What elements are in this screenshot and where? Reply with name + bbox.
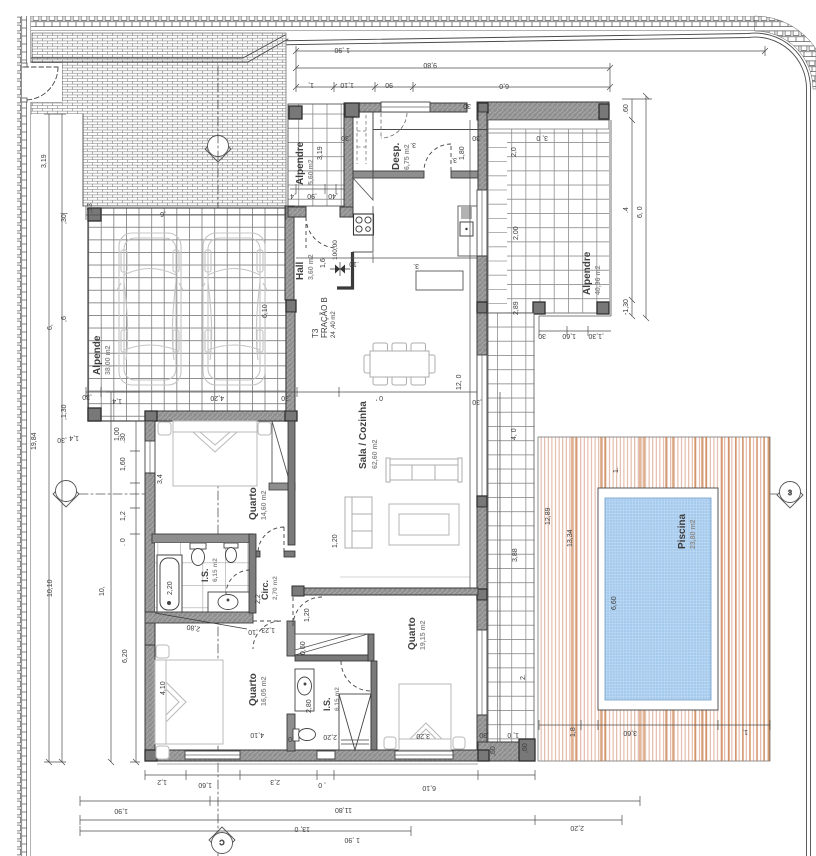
- svg-text:Desp.: Desp.: [391, 143, 402, 170]
- svg-text:2,0: 2,0: [511, 147, 518, 157]
- svg-text:0,60: 0,60: [300, 641, 307, 655]
- svg-text:,0|: ,0|: [286, 735, 294, 742]
- svg-text:Alpende: Alpende: [92, 335, 103, 375]
- svg-text:2,89: 2,89: [513, 301, 520, 315]
- svg-text:62,60 m2: 62,60 m2: [372, 439, 379, 469]
- svg-text:10,10: 10,10: [47, 579, 54, 597]
- svg-text:2,80: 2,80: [306, 699, 313, 713]
- svg-text:6,10: 6,10: [262, 304, 269, 318]
- svg-text:3.: 3.: [413, 262, 419, 269]
- svg-text:3.: 3.: [451, 156, 457, 163]
- svg-text:2,70 m2: 2,70 m2: [272, 576, 279, 600]
- svg-text:3: 3: [788, 490, 792, 497]
- svg-text:0 ': 0 ': [376, 394, 383, 401]
- svg-text:I.S.: I.S.: [200, 568, 210, 582]
- svg-text:3,60: 3,60: [623, 729, 637, 736]
- svg-text:1,8: 1,8: [570, 727, 577, 737]
- svg-text:6,: 6,: [47, 324, 54, 330]
- svg-text:12,89: 12,89: [545, 507, 552, 525]
- svg-text:3,19: 3,19: [41, 154, 48, 168]
- svg-text:1,60: 1,60: [120, 457, 127, 471]
- svg-text:2,3: 2,3: [270, 778, 280, 785]
- svg-text:1,10: 1,10: [340, 81, 354, 88]
- svg-text:13, 0: 13, 0: [294, 825, 310, 832]
- svg-text:6,20: 6,20: [122, 649, 129, 663]
- svg-text:.60: .60: [623, 104, 630, 114]
- svg-text:90: 90: [385, 81, 393, 88]
- svg-text:14,60 m2: 14,60 m2: [261, 490, 268, 520]
- svg-text:100,00: 100,00: [332, 240, 339, 260]
- svg-text:1, 0: 1, 0: [507, 731, 519, 738]
- svg-text:T3: T3: [311, 328, 320, 338]
- svg-text:3,19: 3,19: [317, 146, 324, 160]
- svg-text:,10: ,10: [248, 628, 258, 635]
- svg-text:,30: ,30: [479, 731, 489, 738]
- svg-text:4,10: 4,10: [250, 731, 264, 738]
- svg-text:3,20: 3,20: [416, 732, 430, 739]
- svg-text:,30: ,30: [281, 394, 291, 401]
- svg-text:30: 30: [463, 102, 471, 109]
- svg-text:I.S.: I.S.: [322, 697, 332, 711]
- svg-text:,60: ,60: [490, 746, 497, 756]
- svg-text:,30: ,30: [82, 393, 92, 400]
- svg-text:4, 0: 4, 0: [511, 428, 518, 440]
- svg-text:16,05 m2: 16,05 m2: [261, 676, 268, 706]
- svg-text:1,23: 1,23: [261, 626, 275, 633]
- svg-text:3,4: 3,4: [157, 474, 164, 484]
- svg-text:6,10: 6,10: [422, 784, 436, 791]
- svg-text:6,15 m2: 6,15 m2: [212, 558, 219, 582]
- svg-text:1 ,90: 1 ,90: [344, 836, 360, 843]
- svg-text:,30: ,30: [472, 398, 482, 405]
- svg-text:4,10: 4,10: [160, 681, 167, 695]
- svg-text:2,20: 2,20: [167, 581, 174, 595]
- svg-text:,30: ,30: [341, 134, 351, 141]
- svg-text:24 ,40 m2: 24 ,40 m2: [331, 311, 337, 338]
- svg-text:.4: .4: [623, 207, 630, 213]
- svg-text:Quarto: Quarto: [248, 487, 259, 520]
- svg-text:3,88: 3,88: [512, 548, 519, 562]
- svg-text:,6: ,6: [61, 316, 68, 322]
- svg-text:1,80: 1,80: [459, 146, 466, 160]
- svg-text:38,00 m2: 38,00 m2: [105, 345, 112, 375]
- svg-text:12, 0: 12, 0: [456, 374, 463, 390]
- svg-text:6,60: 6,60: [611, 596, 618, 610]
- svg-text:,33: ,33: [87, 203, 94, 213]
- svg-text:1,4: 1,4: [69, 434, 79, 441]
- svg-text:,1,30: ,1,30: [61, 404, 68, 420]
- svg-text:2,00: 2,00: [513, 226, 520, 240]
- svg-text:3.: 3.: [410, 141, 416, 148]
- svg-text:4,20: 4,20: [210, 394, 224, 401]
- svg-text:Quarto: Quarto: [248, 673, 259, 706]
- svg-text:.10: .10: [349, 260, 359, 267]
- svg-text:,4: ,4: [290, 192, 296, 199]
- svg-text:1,60: 1,60: [198, 781, 212, 788]
- svg-text:,60: ,60: [522, 743, 529, 753]
- svg-text:3, 0: 3, 0: [536, 134, 548, 141]
- svg-text:,90: ,90: [307, 192, 317, 199]
- svg-text:.30: .30: [120, 433, 127, 443]
- svg-text:C: C: [219, 838, 224, 845]
- svg-text:1,2: 1,2: [157, 778, 167, 785]
- svg-text:9,80: 9,80: [423, 61, 437, 68]
- svg-text:Alpendre: Alpendre: [582, 251, 593, 295]
- svg-text:-1,30: -1,30: [623, 299, 630, 315]
- svg-text:1,6: 1,6: [320, 258, 327, 268]
- svg-text:13,34: 13,34: [567, 529, 574, 547]
- svg-text:23,80 m2: 23,80 m2: [690, 519, 697, 549]
- svg-text:,40: ,40: [328, 192, 338, 199]
- svg-text:1,20: 1,20: [304, 608, 311, 622]
- svg-text:19,15 m2: 19,15 m2: [420, 620, 427, 650]
- svg-text:2,2: 2,2: [255, 594, 262, 604]
- svg-text:30: 30: [538, 332, 546, 339]
- svg-text:,30|: ,30|: [61, 212, 68, 224]
- svg-text:Quarto: Quarto: [407, 617, 418, 650]
- svg-text:Alpendre: Alpendre: [295, 141, 306, 185]
- svg-text:11,80: 11,80: [335, 806, 352, 813]
- svg-text:Sala / Cozinha: Sala / Cozinha: [358, 401, 369, 469]
- svg-text:19,84: 19,84: [31, 432, 38, 450]
- svg-text:,30: ,30: [57, 436, 67, 443]
- svg-text:Piscina: Piscina: [677, 514, 688, 549]
- svg-text:1,4: 1,4: [112, 397, 122, 404]
- svg-text:5,60 m2: 5,60 m2: [308, 159, 315, 185]
- svg-text:,30: ,30: [472, 134, 482, 141]
- svg-text:2,20: 2,20: [323, 733, 337, 740]
- svg-text:2.: 2.: [520, 674, 527, 680]
- svg-text:6, 0: 6, 0: [637, 206, 644, 218]
- svg-text:40,96 m2: 40,96 m2: [595, 265, 602, 295]
- svg-text:6,75 m2: 6,75 m2: [404, 144, 411, 170]
- svg-text:2,20: 2,20: [570, 824, 584, 831]
- svg-text:. 0: . 0: [120, 538, 127, 546]
- svg-text:1,2: 1,2: [120, 511, 127, 521]
- svg-text:,6: ,6: [160, 210, 166, 217]
- svg-text:1,: 1,: [308, 81, 314, 88]
- svg-text:1,60: 1,60: [562, 332, 576, 339]
- svg-text:,1,30: ,1,30: [588, 332, 604, 339]
- svg-text:10,: 10,: [99, 586, 106, 596]
- svg-text:, 0: , 0: [318, 781, 326, 788]
- svg-text:1,20: 1,20: [332, 534, 339, 548]
- svg-text:Hall: Hall: [295, 261, 306, 280]
- svg-text:FRAÇÃO B: FRAÇÃO B: [320, 297, 329, 338]
- svg-text:1,: 1,: [742, 728, 748, 735]
- svg-text:1,90: 1,90: [114, 807, 128, 814]
- svg-text:1 ,90: 1 ,90: [334, 46, 350, 53]
- svg-text:6,0: 6,0: [499, 82, 509, 89]
- svg-text:1.: 1.: [613, 467, 620, 473]
